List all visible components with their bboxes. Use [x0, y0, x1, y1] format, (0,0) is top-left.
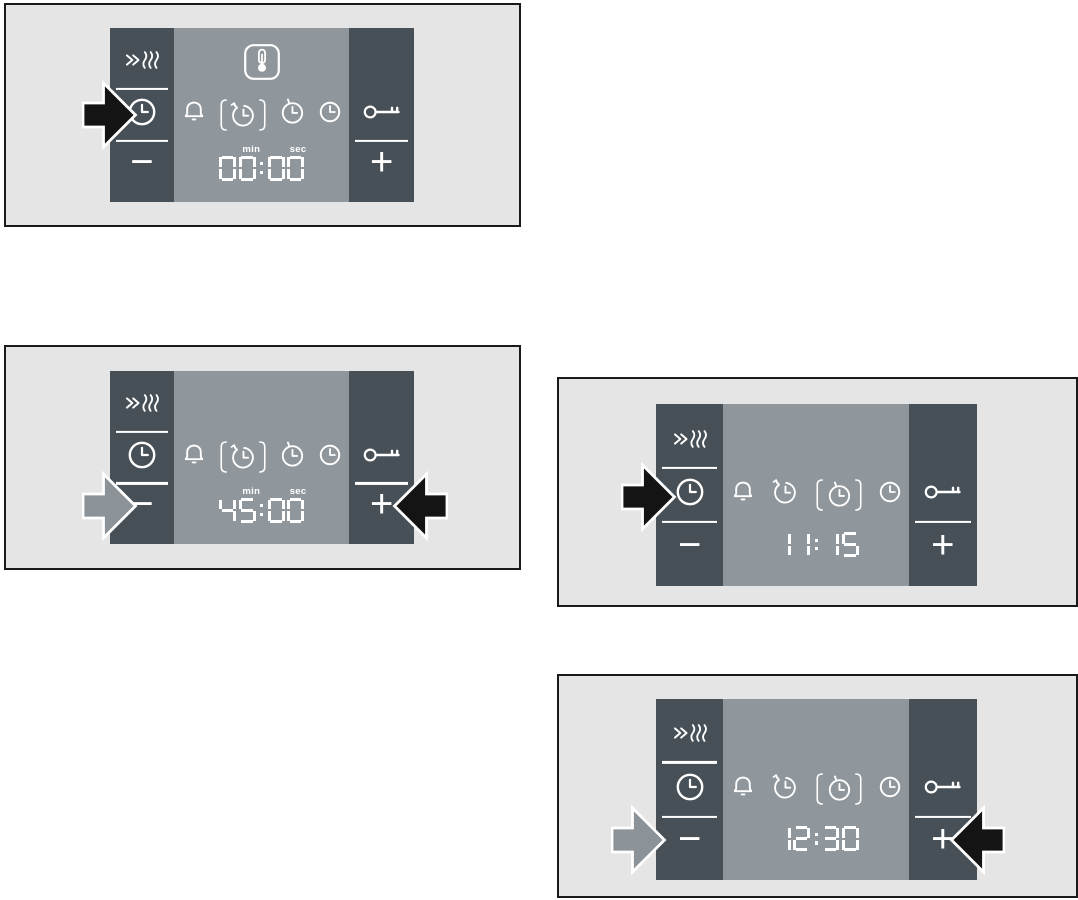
end-time-icon [278, 441, 306, 474]
clock-icon [318, 100, 342, 129]
minus-button[interactable]: − [678, 525, 701, 565]
end-time-icon [278, 98, 306, 131]
time-display: min sec [219, 486, 304, 523]
cooking-time-icon [229, 443, 257, 471]
divider-line [662, 761, 717, 763]
right-button-column: + [909, 404, 977, 586]
display-digit [219, 156, 236, 181]
end-time-icon [825, 775, 853, 803]
display-digit [842, 532, 859, 557]
instruction-arrow-gray-right [611, 805, 667, 875]
timer-button[interactable] [127, 440, 157, 475]
rapid-heat-button[interactable] [124, 392, 159, 419]
display-digit [219, 498, 236, 523]
display [723, 404, 908, 586]
oven-control-panel: − [656, 699, 977, 880]
childlock-key-button[interactable] [923, 481, 963, 508]
display-digit [239, 498, 256, 523]
rapid-heat-button[interactable] [672, 428, 707, 455]
display-digit [268, 156, 285, 181]
end-time-icon-selected [815, 768, 863, 810]
display-digit [774, 826, 791, 851]
figure-cooking-time-initial: − min [4, 3, 521, 227]
time-display: min sec [219, 144, 304, 181]
alarm-bell-icon [730, 774, 756, 805]
bracket-left-icon [815, 768, 824, 810]
divider-line [662, 816, 717, 818]
figure-clock-time-11-15: − [557, 377, 1078, 607]
cooking-time-icon [771, 773, 799, 806]
time-display [774, 826, 859, 851]
minus-button[interactable]: − [678, 819, 701, 859]
time-display [774, 532, 859, 557]
display-digit [774, 532, 791, 557]
display-digit [822, 826, 839, 851]
instruction-arrow-black-right [621, 462, 677, 532]
childlock-key-button[interactable] [362, 444, 402, 471]
bracket-right-icon [854, 474, 863, 516]
bracket-right-icon [258, 94, 267, 136]
bracket-left-icon [219, 94, 228, 136]
display-digit [239, 156, 256, 181]
childlock-key-button[interactable] [923, 776, 963, 803]
display: min sec [174, 371, 349, 544]
end-time-icon-selected [815, 474, 863, 516]
alarm-bell-icon [730, 479, 756, 510]
display: min sec [174, 28, 349, 202]
oven-control-panel: − min [110, 28, 414, 202]
bracket-right-icon [258, 436, 267, 478]
display-colon [258, 498, 265, 523]
display-digit [842, 826, 859, 851]
rapid-heat-button[interactable] [672, 722, 707, 749]
cooking-time-icon [229, 101, 257, 129]
manual-page: − min [0, 0, 1078, 900]
alarm-bell-icon [181, 99, 207, 130]
figure-clock-time-12-30: − [557, 674, 1078, 898]
bracket-left-icon [219, 436, 228, 478]
cooking-time-icon-selected [219, 94, 267, 136]
display-colon [813, 532, 820, 557]
timer-button[interactable] [675, 772, 705, 807]
display-digit [822, 532, 839, 557]
timer-button[interactable] [675, 477, 705, 512]
end-time-icon [825, 481, 853, 509]
display [723, 699, 908, 880]
cooking-time-icon [771, 478, 799, 511]
bracket-left-icon [815, 474, 824, 516]
clock-icon [878, 480, 902, 509]
rapid-heat-button[interactable] [124, 49, 159, 76]
sec-label: sec [290, 486, 307, 497]
instruction-arrow-black-right [82, 80, 138, 150]
thermometer-icon [242, 42, 282, 87]
oven-control-panel: − [656, 404, 977, 586]
sec-label: sec [290, 144, 307, 155]
seven-segment-time [774, 532, 859, 557]
oven-control-panel: − min [110, 371, 414, 544]
display-digit [793, 826, 810, 851]
clock-icon [878, 775, 902, 804]
alarm-bell-icon [181, 442, 207, 473]
cooking-time-icon-selected [219, 436, 267, 478]
divider-line [116, 430, 168, 432]
instruction-arrow-black-left [392, 471, 448, 541]
divider-line [355, 140, 408, 142]
seven-segment-time [774, 826, 859, 851]
min-label: min [242, 486, 260, 497]
plus-button[interactable]: + [370, 484, 393, 524]
display-digit [287, 498, 304, 523]
display-colon [258, 156, 265, 181]
display-digit [287, 156, 304, 181]
seven-segment-time [219, 498, 304, 523]
plus-button[interactable]: + [370, 142, 393, 182]
clock-icon [318, 443, 342, 472]
display-colon [813, 826, 820, 851]
instruction-arrow-gray-right [82, 471, 138, 541]
figure-cooking-time-45-minutes: − min [4, 345, 521, 570]
seven-segment-time [219, 156, 304, 181]
bracket-right-icon [854, 768, 863, 810]
display-digit [793, 532, 810, 557]
min-label: min [242, 144, 260, 155]
childlock-key-button[interactable] [362, 101, 402, 128]
display-digit [268, 498, 285, 523]
instruction-arrow-black-left [949, 805, 1005, 875]
plus-button[interactable]: + [931, 525, 954, 565]
divider-line [915, 521, 971, 523]
right-button-column: + [349, 28, 414, 202]
